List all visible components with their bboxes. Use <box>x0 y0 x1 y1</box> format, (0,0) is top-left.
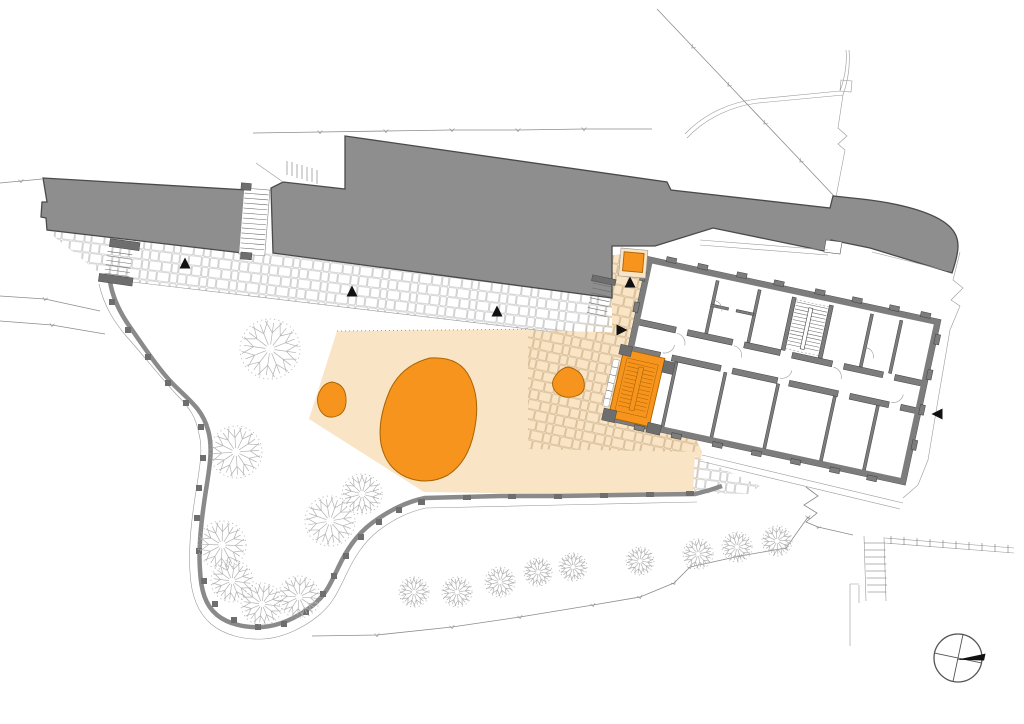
tree-icon <box>211 560 253 602</box>
tree-icon <box>442 577 472 607</box>
tree-icon <box>683 539 713 569</box>
road-edge-upper <box>685 50 846 134</box>
elevator-square <box>619 248 648 278</box>
road-left-edge-2 <box>0 321 105 334</box>
stair-wall-sw <box>602 408 617 423</box>
boundary-diagonal <box>657 9 835 197</box>
boundary-line-bottom <box>312 517 853 636</box>
southeast-lines <box>850 584 859 646</box>
tree-icon <box>278 576 320 618</box>
tree-icon <box>626 547 654 575</box>
tree-icon <box>342 474 382 514</box>
southeast-site-elements <box>850 536 1014 646</box>
entrance-marker-icon <box>932 409 943 420</box>
ladder-stair-rails <box>864 536 886 601</box>
tree-icon <box>399 577 429 607</box>
tree-icon <box>524 558 552 586</box>
tree-icon <box>210 426 262 478</box>
site-plan-drawing <box>0 0 1024 724</box>
boundary-line-top <box>253 129 652 133</box>
retaining-strip-lines <box>885 538 1014 553</box>
tree-icon <box>198 521 246 569</box>
stair-wall-ne <box>662 360 675 374</box>
tree-icon <box>305 496 355 546</box>
compass-rose <box>930 630 989 687</box>
stair-courtyard <box>256 161 317 184</box>
tree-icon <box>722 532 752 562</box>
band-notch <box>824 240 842 254</box>
south-zigzag-steps <box>804 487 818 527</box>
retaining-strip-ticks <box>891 536 1008 553</box>
tree-icon <box>241 583 283 625</box>
tree-icon <box>485 567 515 597</box>
path-east-jagged <box>836 95 847 197</box>
boundary-line-top-left <box>0 179 42 183</box>
site-plan-canvas <box>0 0 1024 724</box>
tree-icon <box>240 319 300 379</box>
ladder-stair-treads <box>864 543 887 592</box>
road-edge-lower <box>687 50 849 138</box>
road-left-edge-1 <box>0 296 100 311</box>
tree-icon <box>559 553 587 581</box>
